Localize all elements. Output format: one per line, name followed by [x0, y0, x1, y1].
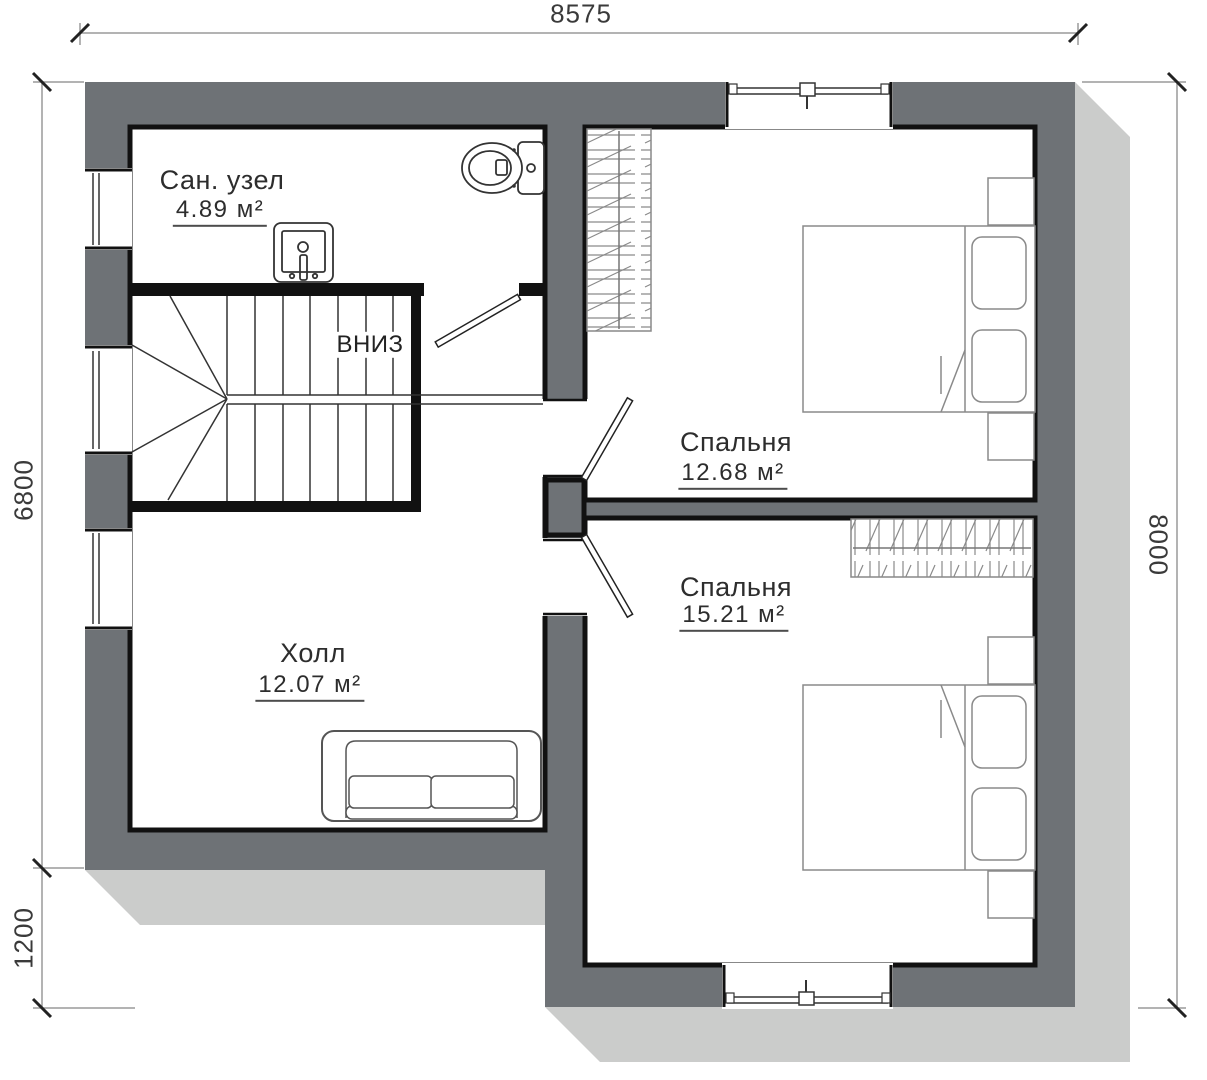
room-label-hall: Холл: [280, 639, 346, 669]
window-stairs: [83, 345, 132, 455]
room-label-bedroom-2: Спальня: [680, 573, 792, 603]
stairs-direction-label: ВНИЗ: [333, 332, 406, 358]
dimension-top-value: 8575: [550, 0, 612, 28]
room-label-bedroom-1: Спальня: [680, 428, 792, 458]
toilet-symbol: [462, 142, 544, 194]
nightstand: [988, 178, 1034, 225]
nightstand: [988, 413, 1034, 460]
room-area-bedroom-1: 12.68 м²: [678, 460, 787, 490]
floor-plan-canvas: 8575 6800 1200 8000 Сан. узел 4.89 м² Сп…: [0, 0, 1207, 1080]
room-area-hall: 12.07 м²: [255, 672, 364, 702]
dimension-left-lower-value: 1200: [10, 907, 39, 969]
room-area-bathroom: 4.89 м²: [173, 197, 267, 227]
dimension-right-value: 8000: [1144, 514, 1173, 576]
window-bathroom: [83, 168, 132, 250]
window-bedroom-2: [722, 963, 893, 1009]
room-area-bedroom-2: 15.21 м²: [679, 602, 788, 632]
nightstand: [988, 637, 1034, 684]
dimension-left-upper-value: 6800: [10, 459, 39, 521]
nightstand: [988, 871, 1034, 918]
sink-symbol: [274, 223, 333, 282]
window-bedroom-1: [725, 80, 893, 129]
room-label-bathroom: Сан. узел: [160, 166, 285, 196]
window-hall: [83, 528, 132, 630]
floor-plan-drawing: [0, 0, 1207, 1080]
bedroom-door-openings: [542, 399, 588, 616]
wardrobe-bedroom-1: [587, 129, 651, 331]
wardrobe-bedroom-2: [851, 519, 1033, 577]
sofa-symbol: [322, 731, 541, 821]
